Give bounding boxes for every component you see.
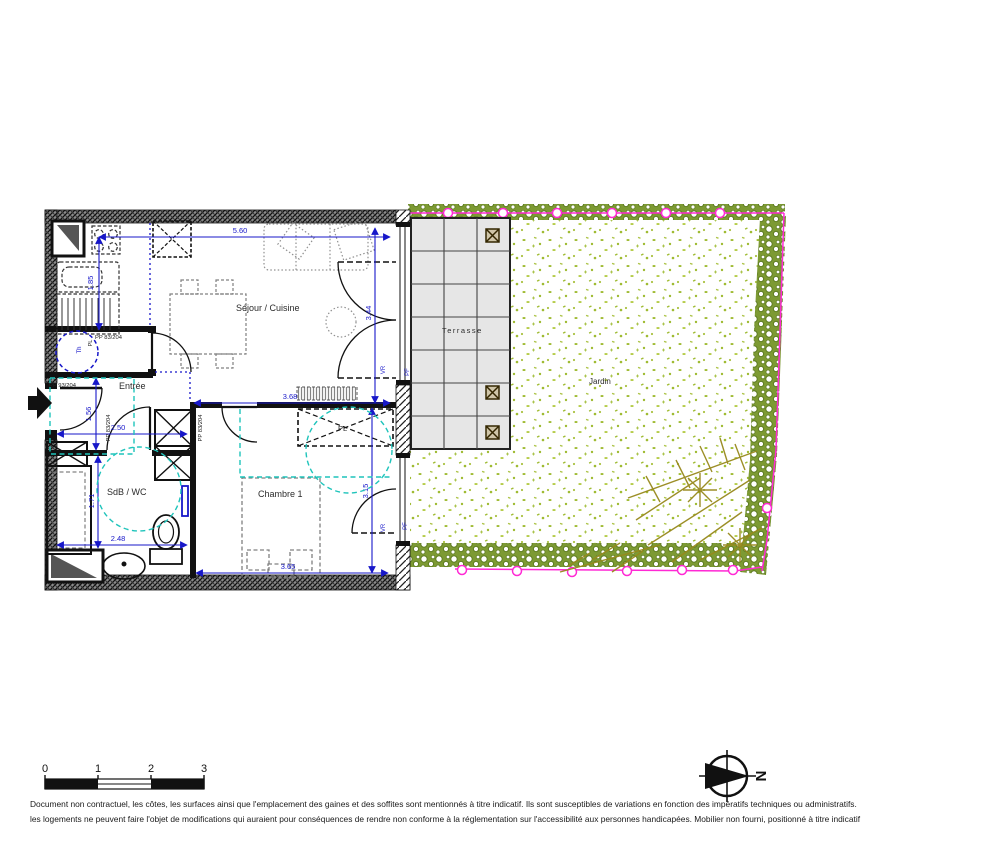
door-threshold xyxy=(182,486,188,516)
french-door-swing-2 xyxy=(338,320,396,378)
entry-label: Entrée xyxy=(119,381,146,391)
dim-chambre-top-width: 3.68 xyxy=(283,392,298,401)
bedroom-closet-label: PL xyxy=(338,424,347,433)
floor-plan-drawing: Jardin Terrasse xyxy=(0,0,1000,857)
dim-sejour-height: 3.44 xyxy=(364,306,373,321)
toilet xyxy=(150,515,182,564)
dim-entree-width: 2.50 xyxy=(111,423,126,432)
bedroom-door-label: PP 83/204 xyxy=(198,414,204,442)
scale-bar: 0 1 2 3 xyxy=(42,763,207,789)
scale-tick-1: 1 xyxy=(95,763,101,775)
living-door-swing xyxy=(152,333,191,372)
french-window-bedroom-label: PF xyxy=(403,522,409,530)
north-label: N xyxy=(752,771,769,782)
scale-tick-3: 3 xyxy=(201,763,207,775)
windows xyxy=(396,222,410,546)
room-labels: Séjour / Cuisine Entrée SdB / WC Chambre… xyxy=(107,303,303,499)
north-compass: N xyxy=(699,750,769,802)
duct-shaft-top xyxy=(52,221,84,256)
bathroom-label: SdB / WC xyxy=(107,487,147,497)
terrace: Terrasse xyxy=(411,218,510,449)
bedroom-closet: PL xyxy=(297,387,393,446)
pillow-left xyxy=(247,550,269,570)
hedge-bottom xyxy=(410,543,758,567)
dim-kitchen-depth: 1.85 xyxy=(86,276,95,291)
disclaimer-line-2: les logements ne peuvent faire l'objet d… xyxy=(30,814,860,824)
bedroom-window-door-swing xyxy=(352,489,396,533)
floor-plan-page: Jardin Terrasse xyxy=(0,0,1000,857)
side-table xyxy=(326,307,356,337)
soffit-box xyxy=(297,387,357,400)
entrance-door-label: PP 93/204 xyxy=(49,383,77,389)
garden-label: Jardin xyxy=(589,377,611,386)
wall-right-bottom xyxy=(396,545,410,590)
thermostat-label: Th xyxy=(77,346,83,353)
shutter-bedroom-label: VR xyxy=(381,523,387,532)
dining-set xyxy=(170,280,246,368)
wall-right-mid xyxy=(396,385,410,455)
french-window-living-label: PF xyxy=(405,368,411,376)
entry-closet-label: PL xyxy=(88,340,94,347)
bedroom-label: Chambre 1 xyxy=(258,489,303,499)
dining-table xyxy=(170,294,246,354)
scale-tick-2: 2 xyxy=(148,763,154,775)
shutter-living-label: VR xyxy=(381,365,387,374)
living-room-label: Séjour / Cuisine xyxy=(236,303,300,313)
disclaimer-line-1: Document non contractuel, les côtes, les… xyxy=(30,799,857,809)
clearance-lines-bedroom xyxy=(240,409,392,477)
turning-circle-bedroom xyxy=(306,407,392,493)
bathroom-door-label: PP 83/204 xyxy=(106,414,112,442)
dim-sdb-width: 2.48 xyxy=(111,534,126,543)
dim-sdb-height: 1.71 xyxy=(87,494,96,509)
living-window xyxy=(396,225,410,382)
scale-tick-0: 0 xyxy=(42,763,48,775)
entrance-arrow-icon xyxy=(28,387,52,419)
dim-chambre-width: 3.65 xyxy=(281,562,296,571)
wall-top xyxy=(45,210,396,223)
sofa xyxy=(264,224,368,270)
living-door-label: PP 83/204 xyxy=(95,335,123,341)
terrace-label: Terrasse xyxy=(442,326,483,335)
dim-sejour-width: 5.60 xyxy=(233,226,248,235)
entry-closet xyxy=(155,410,192,480)
dim-entree-height: 1.56 xyxy=(84,407,93,422)
